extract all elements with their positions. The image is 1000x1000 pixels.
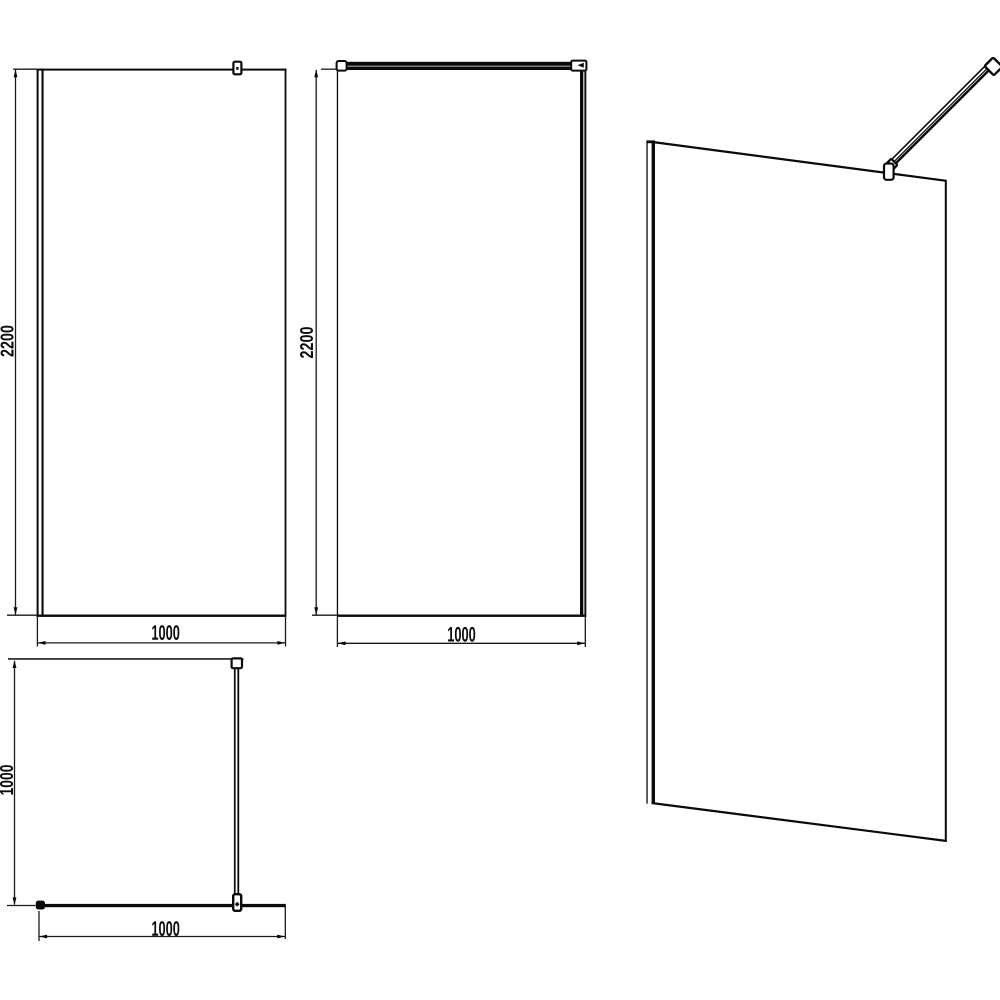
svg-text:2200: 2200 — [0, 325, 18, 357]
svg-text:1000: 1000 — [447, 623, 476, 646]
svg-text:1000: 1000 — [151, 918, 180, 941]
svg-text:1000: 1000 — [0, 765, 17, 796]
svg-text:2200: 2200 — [297, 327, 317, 359]
svg-text:1000: 1000 — [151, 622, 180, 645]
